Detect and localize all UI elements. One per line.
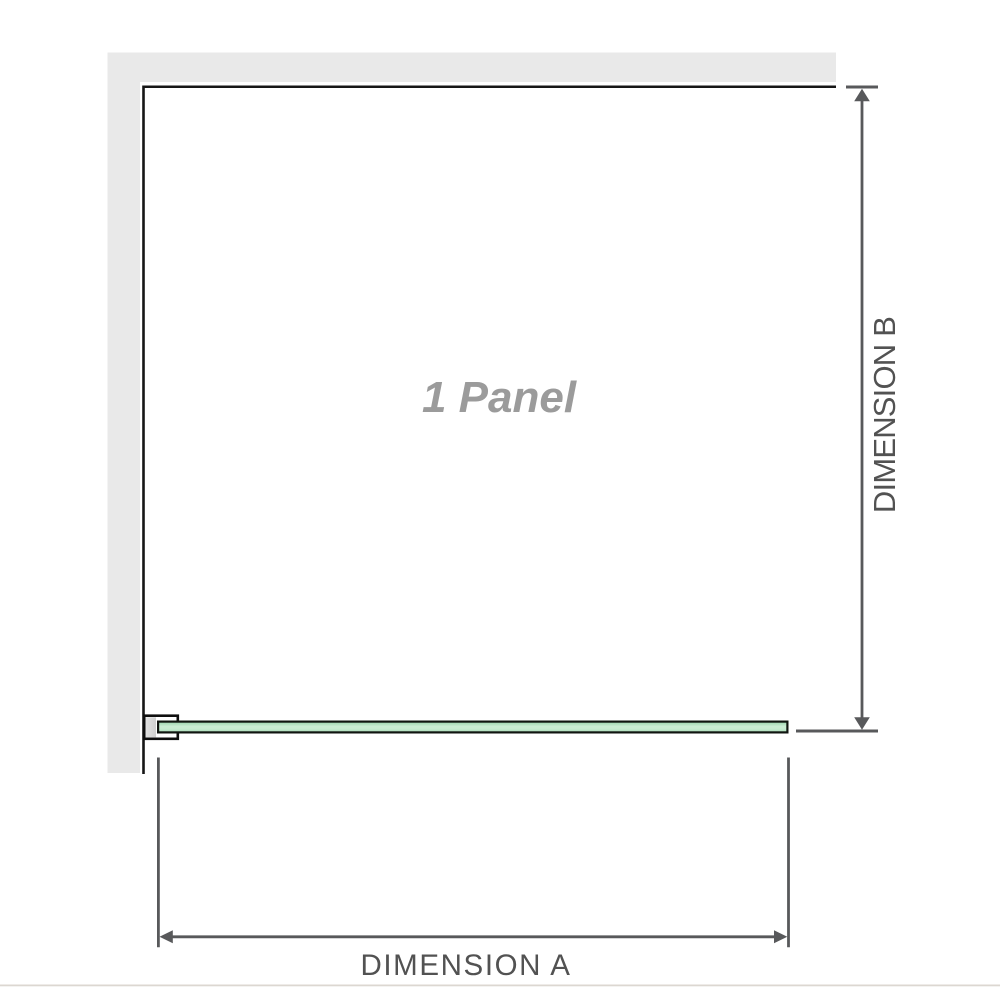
svg-text:DIMENSION A: DIMENSION A [360,949,571,982]
svg-text:1 Panel: 1 Panel [422,373,577,422]
svg-text:DIMENSION B: DIMENSION B [867,317,902,513]
